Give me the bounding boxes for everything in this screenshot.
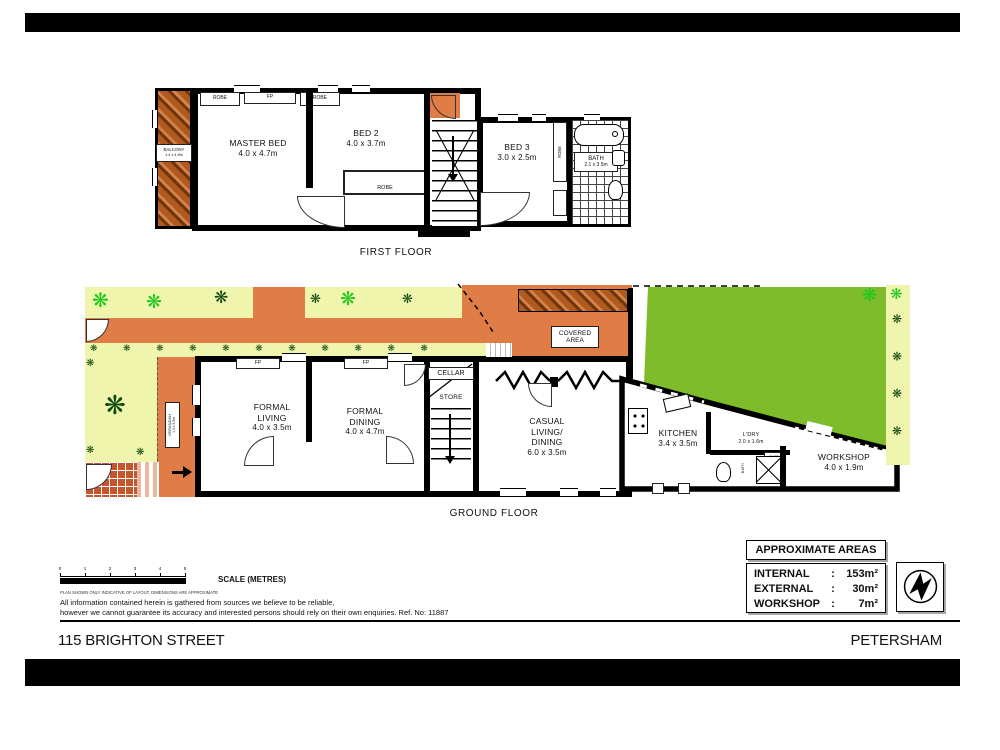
plant-icon: ❋ xyxy=(136,448,144,458)
toilet xyxy=(716,462,731,482)
compass-box xyxy=(896,562,944,612)
covered-area-label-box: COVEREDAREA xyxy=(551,326,599,348)
store-text: STORE xyxy=(439,394,462,401)
area-sep: : xyxy=(826,598,840,610)
fineprint: PLAN SHOWN ONLY INDICATIVE OF LAYOUT. DI… xyxy=(60,590,218,595)
ground-floor-caption: GROUND FLOOR xyxy=(424,508,564,519)
floorplan-page: { "icons": { "plant": "❋", "plant_row": … xyxy=(0,0,1000,750)
plant-col-icons: ❋ ❋ ❋ ❋ xyxy=(891,312,903,462)
area-label: WORKSHOP xyxy=(754,598,826,610)
formal-living-label: FORMAL LIVING4.0 x 3.5m xyxy=(243,402,301,433)
areas-row-external: EXTERNAL:30m² xyxy=(747,581,885,596)
scale-ticks xyxy=(60,573,186,577)
scale-number: 2 xyxy=(105,566,115,571)
window xyxy=(192,385,201,405)
areas-title: APPROXIMATE AREAS xyxy=(755,544,876,556)
area-value: 30m² xyxy=(840,583,878,595)
scale-number: 1 xyxy=(80,566,90,571)
footer-bar xyxy=(25,659,960,686)
plant-icon: ❋ xyxy=(862,286,877,304)
verandah-dim: 1.3 x 5.3m xyxy=(173,417,177,433)
plant-icon: ❋ xyxy=(214,289,228,306)
wall xyxy=(306,362,312,442)
covered-line2: AREA xyxy=(566,337,584,344)
wall xyxy=(473,362,479,491)
plant-icon: ❋ xyxy=(890,287,903,302)
room-name: FORMAL LIVING xyxy=(254,402,291,423)
scale-number: 3 xyxy=(130,566,140,571)
wall xyxy=(706,412,711,454)
wall xyxy=(424,362,430,491)
footer-suburb: PETERSHAM xyxy=(640,632,942,649)
window-label-box xyxy=(652,483,664,494)
cellar-label: CELLAR xyxy=(437,370,464,378)
cellar-label-box: CELLAR xyxy=(428,367,474,380)
disclaimer-line2: however we cannot guarantee its accuracy… xyxy=(60,608,448,617)
wall xyxy=(780,446,786,490)
areas-row-workshop: WORKSHOP:7m² xyxy=(747,596,885,611)
plant-icon: ❋ xyxy=(340,290,356,309)
entry-arrow-stem xyxy=(172,471,183,474)
area-label: INTERNAL xyxy=(754,568,826,580)
workshop-label: WORKSHOP4.0 x 1.9m xyxy=(798,452,890,473)
fireplace-box: FP xyxy=(344,358,388,369)
entry-arrow-head xyxy=(183,466,192,478)
plant-icon: ❋ xyxy=(86,359,94,369)
kitchen-label: KITCHEN3.4 x 3.5m xyxy=(647,428,709,449)
store-label: STORE xyxy=(429,394,473,402)
room-dim: 6.0 x 3.5m xyxy=(518,448,576,458)
stove xyxy=(628,408,648,434)
area-sep: : xyxy=(826,583,840,595)
area-value: 7m² xyxy=(840,598,878,610)
scale-number: 0 xyxy=(55,566,65,571)
fp-label: FP xyxy=(363,361,369,367)
fireplace-box: FP xyxy=(236,358,280,369)
room-name: WORKSHOP xyxy=(818,452,870,462)
room-name: L'DRY xyxy=(743,432,760,438)
plant-row-icons: ❋ ❋ ❋ ❋ ❋ ❋ ❋ ❋ ❋ ❋ ❋ xyxy=(90,344,492,353)
scale-bar xyxy=(60,578,186,584)
scale-number: 5 xyxy=(180,566,190,571)
disclaimer-line1: All information contained herein is gath… xyxy=(60,598,334,607)
window xyxy=(500,488,526,497)
areas-table: INTERNAL:153m² EXTERNAL:30m² WORKSHOP:7m… xyxy=(746,563,886,613)
formal-dining-label: FORMAL DINING4.0 x 4.7m xyxy=(336,406,394,437)
window xyxy=(282,353,306,362)
plant-icon: ❋ xyxy=(86,446,94,456)
laundry-label: L'DRY2.0 x 1.6m xyxy=(726,432,776,445)
window xyxy=(600,488,616,497)
verandah-label-box: VERANDAH1.3 x 5.3m xyxy=(165,402,180,448)
room-dim: 2.0 x 1.6m xyxy=(726,439,776,445)
boundary-dashed-diagonal xyxy=(458,284,493,332)
casual-living-label: CASUAL LIVING/ DINING6.0 x 3.5m xyxy=(518,416,576,458)
plant-icon: ❋ xyxy=(92,291,109,311)
area-value: 153m² xyxy=(840,568,878,580)
open-wall-zigzag xyxy=(558,372,621,388)
room-name: KITCHEN xyxy=(659,428,698,438)
scale-label: SCALE (METRES) xyxy=(218,575,286,584)
window xyxy=(388,353,412,362)
window xyxy=(560,488,578,497)
covered-line1: COVERED xyxy=(559,330,591,337)
window-label-box xyxy=(678,483,690,494)
room-dim: 3.4 x 3.5m xyxy=(647,439,709,449)
divider-rule xyxy=(60,620,960,622)
bath-text: BATH xyxy=(741,463,745,473)
room-name: CASUAL LIVING/ DINING xyxy=(529,416,564,447)
plant-icon: ❋ xyxy=(104,392,126,418)
shower xyxy=(756,456,781,484)
areas-title-box: APPROXIMATE AREAS xyxy=(746,540,886,560)
stair-arrow-stem xyxy=(449,414,451,456)
footer-address: 115 BRIGHTON STREET xyxy=(58,632,225,649)
plant-icon: ❋ xyxy=(146,293,162,312)
north-arrow-icon xyxy=(898,563,943,610)
room-name: FORMAL DINING xyxy=(347,406,384,427)
scale-number: 4 xyxy=(155,566,165,571)
plant-icon: ❋ xyxy=(310,292,321,305)
room-dim: 4.0 x 3.5m xyxy=(243,423,301,433)
bath-small-label: BATH xyxy=(735,463,751,475)
plant-icon: ❋ xyxy=(402,292,413,305)
fp-label: FP xyxy=(255,361,261,367)
area-label: EXTERNAL xyxy=(754,583,826,595)
stair-arrow-head xyxy=(445,456,455,464)
window xyxy=(192,418,201,436)
room-dim: 4.0 x 1.9m xyxy=(798,463,890,473)
areas-row-internal: INTERNAL:153m² xyxy=(747,566,885,581)
area-sep: : xyxy=(826,568,840,580)
